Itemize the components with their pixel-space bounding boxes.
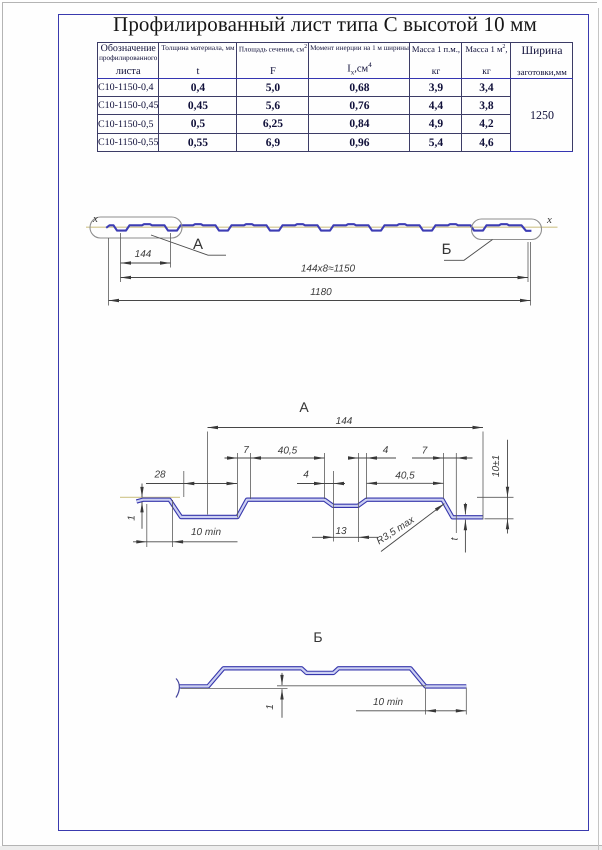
svg-text:144: 144: [135, 249, 152, 260]
svg-text:1: 1: [265, 704, 276, 710]
svg-text:7: 7: [422, 446, 428, 457]
svg-text:4: 4: [383, 445, 389, 456]
svg-text:А: А: [299, 399, 309, 415]
svg-text:10 min: 10 min: [373, 697, 403, 708]
svg-text:А: А: [193, 236, 203, 253]
svg-text:1180: 1180: [310, 287, 332, 298]
svg-text:40,5: 40,5: [278, 446, 298, 457]
svg-text:28: 28: [153, 470, 166, 481]
svg-text:10 min: 10 min: [191, 527, 221, 538]
svg-text:13: 13: [335, 526, 347, 537]
svg-text:R3,5 max: R3,5 max: [375, 514, 418, 547]
svg-text:7: 7: [243, 445, 249, 456]
svg-text:t: t: [450, 536, 461, 540]
svg-text:10±1: 10±1: [491, 455, 502, 477]
svg-text:Б: Б: [442, 241, 452, 258]
svg-text:144: 144: [336, 416, 353, 427]
svg-text:4: 4: [303, 470, 309, 481]
svg-text:x: x: [546, 214, 552, 226]
svg-text:x: x: [92, 213, 98, 225]
svg-text:144x8≈1150: 144x8≈1150: [301, 264, 356, 275]
svg-text:Б: Б: [313, 629, 322, 645]
svg-text:40,5: 40,5: [395, 471, 415, 482]
svg-text:1: 1: [127, 515, 138, 521]
